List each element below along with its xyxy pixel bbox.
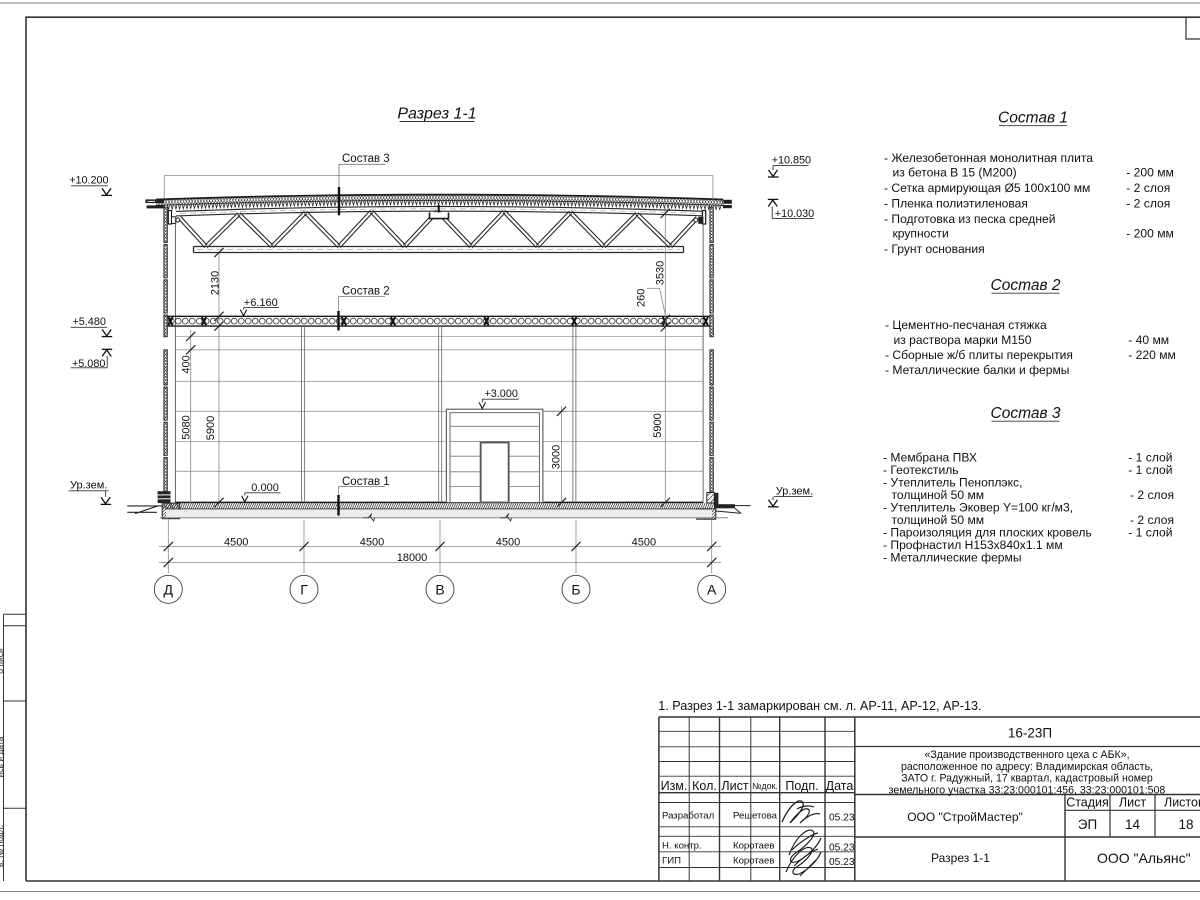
svg-text:- Сборные ж/б плиты перекрытия: - Сборные ж/б плиты перекрытия — [885, 348, 1073, 362]
svg-text:+10.850: +10.850 — [772, 155, 811, 167]
svg-text:- 40 мм: - 40 мм — [1128, 333, 1169, 347]
svg-text:4500: 4500 — [360, 536, 384, 548]
svg-text:В: В — [435, 582, 444, 598]
svg-text:Подп.: Подп. — [785, 779, 818, 793]
svg-text:05.23: 05.23 — [829, 843, 855, 854]
svg-text:Кол.: Кол. — [692, 779, 717, 793]
svg-text:ООО "Альянс": ООО "Альянс" — [1097, 850, 1191, 866]
svg-text:ГИП: ГИП — [662, 855, 681, 866]
svg-text:+3.000: +3.000 — [485, 388, 518, 400]
svg-text:2130: 2130 — [210, 271, 222, 295]
svg-text:- 2 слоя: - 2 слоя — [1126, 197, 1170, 211]
svg-text:Состав 1: Состав 1 — [342, 476, 390, 488]
svg-text:расположенное по адресу: Влади: расположенное по адресу: Владимирская об… — [901, 761, 1153, 773]
svg-text:3530: 3530 — [655, 261, 667, 285]
svg-text:ись и дата: ись и дата — [0, 736, 5, 777]
svg-text:- 200 мм: - 200 мм — [1126, 166, 1174, 180]
svg-text:+6.160: +6.160 — [244, 297, 278, 309]
svg-text:Состав 2: Состав 2 — [991, 277, 1061, 294]
svg-text:- 2 слоя: - 2 слоя — [1126, 181, 1170, 195]
svg-text:Дата: Дата — [826, 779, 854, 793]
svg-text:Д: Д — [164, 582, 174, 598]
svg-text:5900: 5900 — [652, 413, 664, 437]
svg-text:05.23: 05.23 — [829, 813, 855, 824]
svg-text:- Железобетонная монолитная п: - Железобетонная монолитная плита — [884, 151, 1093, 165]
svg-text:крупности: крупности — [893, 227, 949, 241]
svg-text:0.000: 0.000 — [251, 482, 279, 494]
svg-text:Листов: Листов — [1164, 796, 1200, 810]
svg-text:05.23: 05.23 — [829, 857, 855, 868]
svg-text:Н. контр.: Н. контр. — [662, 840, 702, 851]
svg-text:400: 400 — [181, 355, 193, 373]
svg-text:- 220 мм: - 220 мм — [1128, 348, 1176, 362]
svg-text:Состав 1: Состав 1 — [998, 110, 1068, 127]
svg-text:из раствора марки М150: из раствора марки М150 — [894, 333, 1032, 347]
svg-text:- Пленка полиэтиленовая: - Пленка полиэтиленовая — [884, 197, 1028, 211]
svg-text:18: 18 — [1178, 817, 1193, 832]
svg-text:- Грунт основания: - Грунт основания — [884, 242, 985, 256]
svg-text:Ур.зем.: Ур.зем. — [70, 480, 107, 492]
svg-text:4500: 4500 — [496, 536, 520, 548]
svg-text:Лист: Лист — [721, 779, 748, 793]
svg-text:А: А — [707, 582, 717, 598]
svg-text:Коротаев: Коротаев — [733, 855, 774, 866]
svg-text:+10.030: +10.030 — [775, 208, 814, 220]
svg-text:о писи: о писи — [0, 648, 5, 674]
svg-text:ЭП: ЭП — [1078, 817, 1097, 832]
svg-text:16-23П: 16-23П — [1008, 726, 1052, 741]
svg-text:ЗАТО г. Радужный, 17 квартал,: ЗАТО г. Радужный, 17 квартал, кадастровы… — [901, 773, 1153, 785]
svg-text:Решетова: Решетова — [733, 811, 778, 822]
svg-text:Разрез 1-1: Разрез 1-1 — [397, 106, 476, 123]
svg-text:Коротаев: Коротаев — [733, 840, 774, 851]
svg-text:Стадия: Стадия — [1066, 796, 1109, 810]
svg-text:Изм.: Изм. — [661, 779, 688, 793]
svg-text:из бетона В 15 (М200): из бетона В 15 (М200) — [893, 166, 1017, 180]
svg-text:«Здание производственного цеха: «Здание производственного цеха с АБК», — [924, 749, 1129, 761]
svg-text:Лист: Лист — [1119, 796, 1146, 810]
svg-text:14: 14 — [1125, 817, 1141, 832]
svg-text:№док.: №док. — [752, 781, 778, 791]
svg-text:Разрез 1-1: Разрез 1-1 — [931, 851, 990, 865]
svg-text:1. Разрез 1-1 замаркирован см.: 1. Разрез 1-1 замаркирован см. л. АР-11,… — [658, 699, 981, 713]
svg-text:4500: 4500 — [632, 536, 656, 548]
svg-text:Г: Г — [300, 582, 308, 598]
svg-text:- 200 мм: - 200 мм — [1126, 227, 1174, 241]
svg-text:5900: 5900 — [205, 416, 217, 440]
svg-text:4500: 4500 — [224, 536, 248, 548]
svg-text:5080: 5080 — [181, 415, 193, 439]
svg-text:Б: Б — [571, 582, 580, 598]
svg-text:Состав 3: Состав 3 — [991, 405, 1061, 422]
svg-text:- 2 слоя: - 2 слоя — [1130, 488, 1174, 502]
svg-text:3000: 3000 — [551, 445, 563, 469]
svg-text:+5.480: +5.480 — [73, 316, 106, 328]
svg-text:- Подготовка из песка средней: - Подготовка из песка средней — [884, 212, 1055, 226]
svg-text:- Сетка армирующая Ø5 100х100: - Сетка армирующая Ø5 100х100 мм — [884, 181, 1090, 195]
svg-text:+10.200: +10.200 — [69, 175, 108, 187]
svg-text:- Металлические балки и фермы: - Металлические балки и фермы — [885, 363, 1070, 377]
svg-text:18000: 18000 — [397, 552, 428, 564]
svg-text:в. № подл.: в. № подл. — [0, 825, 5, 867]
svg-text:Состав 3: Состав 3 — [342, 153, 390, 165]
svg-text:Разработал: Разработал — [662, 811, 714, 822]
svg-text:Состав 2: Состав 2 — [342, 286, 390, 298]
svg-text:ООО "СтройМастер": ООО "СтройМастер" — [907, 810, 1023, 824]
svg-text:- 1 слой: - 1 слой — [1128, 463, 1172, 477]
svg-text:- 1 слой: - 1 слой — [1128, 526, 1172, 540]
svg-text:- Цементно-песчаная стяжка: - Цементно-песчаная стяжка — [885, 318, 1047, 332]
svg-text:- Металлические фермы: - Металлические фермы — [883, 551, 1022, 565]
svg-text:260: 260 — [636, 289, 648, 307]
svg-text:Ур.зем.: Ур.зем. — [776, 485, 813, 497]
